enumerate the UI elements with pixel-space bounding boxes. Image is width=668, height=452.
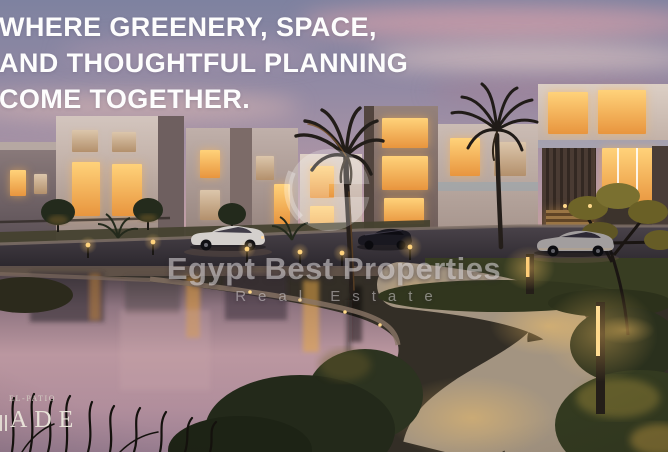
developer-logo: EL-PATIO ADE: [0, 394, 80, 434]
headline-line-1: WHERE GREENERY, SPACE,: [0, 9, 408, 45]
headline-line-2: AND THOUGHTFUL PLANNING: [0, 45, 408, 81]
developer-logo-name: ADE: [10, 407, 80, 434]
cropped-letter-fragment: [0, 415, 8, 431]
real-estate-photo: WHERE GREENERY, SPACE, AND THOUGHTFUL PL…: [0, 0, 668, 452]
developer-logo-project: EL-PATIO: [9, 394, 80, 403]
headline-line-3: COME TOGETHER.: [0, 81, 408, 117]
headline: WHERE GREENERY, SPACE, AND THOUGHTFUL PL…: [0, 9, 408, 117]
watermark-tagline-text: Real Estate: [0, 288, 668, 305]
watermark-brand-text: Egypt Best Properties: [0, 251, 668, 287]
